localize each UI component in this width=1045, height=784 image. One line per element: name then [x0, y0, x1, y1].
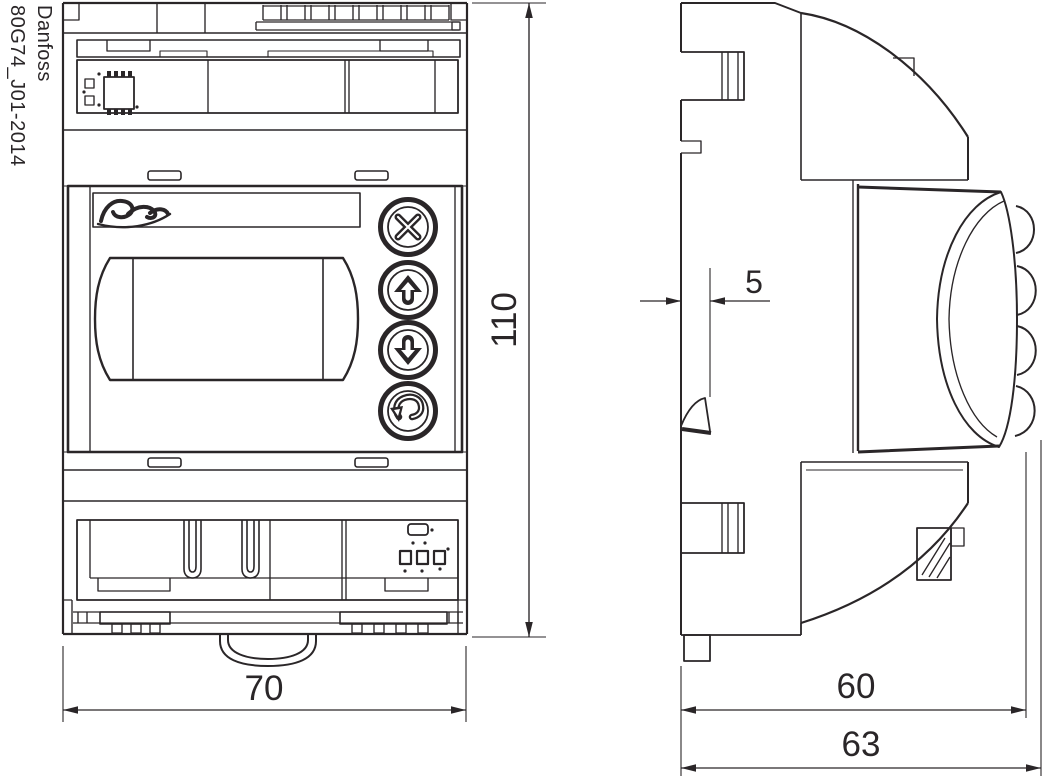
faceplate [63, 186, 467, 452]
dimension-front-height: 110 [472, 3, 546, 637]
front-face-profile [853, 180, 1036, 453]
lower-cover [801, 462, 968, 623]
button-bumps-profile [1015, 206, 1036, 436]
top-terminal-band [157, 3, 460, 33]
dimension-overall-depth: 63 [681, 440, 1041, 776]
clip-foot [684, 635, 710, 661]
display-window [95, 258, 358, 380]
cancel-x-icon [398, 217, 418, 237]
bottom-rail [73, 612, 463, 666]
arrow-up-icon [394, 275, 422, 305]
terminal-teeth-row [263, 5, 449, 20]
din-latch [681, 398, 711, 433]
button-cancel [381, 200, 436, 255]
button-down [381, 323, 436, 378]
technical-drawing-page: 80G74_J01-2014 Danfoss [0, 0, 1045, 784]
dim-label-60: 60 [837, 667, 876, 706]
dimensional-drawing: 80G74_J01-2014 Danfoss [0, 0, 1045, 784]
watermark-doc-id: 80G74_J01-2014 [6, 5, 28, 167]
top-compartment [77, 60, 458, 115]
upper-cover [801, 13, 968, 180]
dim-label-70: 70 [245, 669, 284, 708]
button-enter [381, 384, 436, 439]
button-up [381, 263, 436, 318]
side-view: 5 60 63 [640, 3, 1041, 776]
bottom-compartment [77, 520, 458, 600]
dimension-front-width: 70 [63, 646, 466, 722]
connector-detail [400, 524, 450, 573]
dimension-latch-offset: 5 [640, 264, 770, 397]
upper-strip [77, 40, 460, 57]
pcb-chip [82, 71, 138, 115]
rear-spine [681, 3, 801, 661]
din-rail-clip [220, 634, 316, 666]
watermark: 80G74_J01-2014 Danfoss [6, 5, 55, 167]
front-view: 70 110 [63, 3, 546, 722]
vent-slots [148, 171, 388, 467]
watermark-brand: Danfoss [33, 5, 55, 82]
danfoss-script-logo [98, 201, 170, 227]
enter-icon [390, 397, 421, 422]
arrow-down-icon [394, 335, 422, 365]
dim-label-5: 5 [745, 264, 763, 300]
dim-label-63: 63 [842, 725, 881, 764]
dim-label-110: 110 [485, 292, 524, 348]
